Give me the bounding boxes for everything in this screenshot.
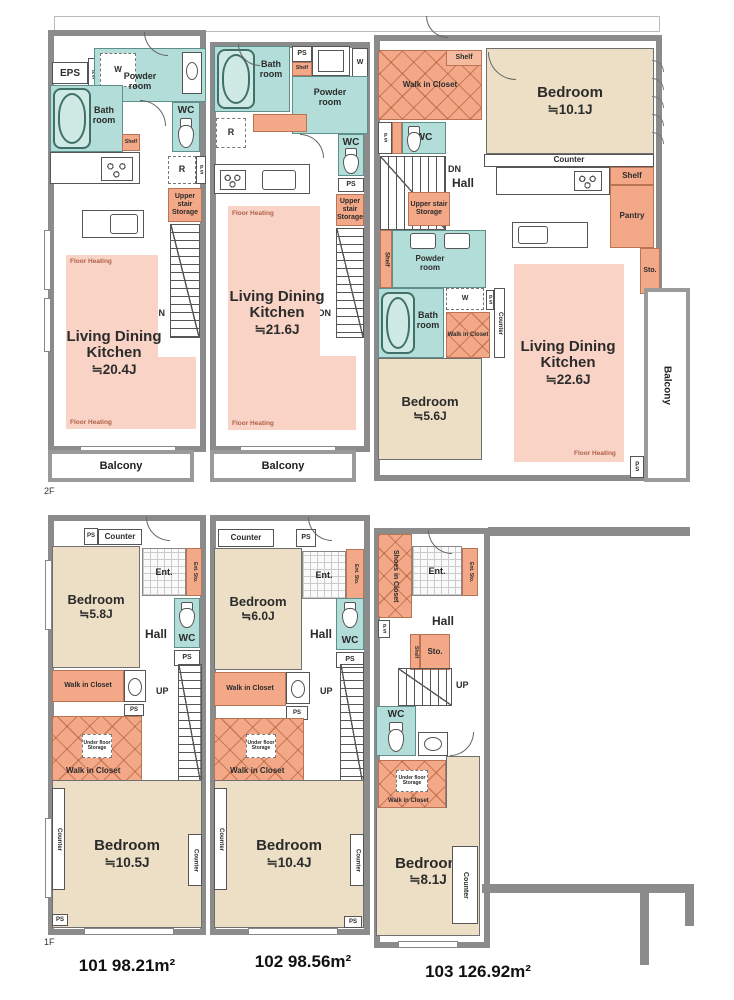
sink-icon [110,214,138,234]
hall-label: Hall [432,614,454,628]
washer-label: W [462,295,469,303]
walk-in-closet: Walk in Closet [446,312,490,358]
toilet-icon [386,722,406,752]
room-label: Powder room [118,71,162,91]
walk-in-closet-label: Walk in Closet [230,766,284,775]
washer-space: W [446,288,484,310]
room-label: Shelf [455,54,472,62]
entrance-storage: Ent. Sto. [462,548,478,596]
floor-tag-2f: 2F [44,486,55,496]
bedroom-area [446,756,480,810]
ps-label: PS [382,133,388,143]
storage: Sto. [420,634,450,670]
pipe-space: PS [344,916,362,928]
room-label: Ent. [429,566,446,576]
ps-label: PS [130,707,138,714]
pipe-space: PS [84,528,98,545]
room-label: Sto. [643,267,656,275]
boundary-wall [685,884,694,926]
casement-window [652,114,664,126]
entrance-storage: Ent. Sto. [186,548,202,596]
refrigerator-label: R [179,165,186,175]
room-label: Shoes in Closet [391,550,399,603]
shelf: Shelf [380,230,392,288]
room-label: Ent. Sto. [352,564,358,584]
casement-window [652,78,664,90]
stair-diagonal [399,669,451,705]
washbasin-icon [186,62,198,80]
shelf: Shelf [410,634,420,670]
room-size: ≒6.0J [241,610,274,623]
toilet-icon [342,148,360,174]
floor-heating-label: Floor Heating [574,450,616,457]
floor-heating-label: Floor Heating [232,210,274,217]
room-size: ≒10.1J [547,102,592,117]
pipe-space: PS [378,122,392,154]
window [84,928,174,935]
ps-label: PS [345,656,354,664]
washer-label: W [357,59,364,67]
counter: Counter [98,529,142,545]
ps-label: PS [56,917,64,924]
room-label: Upper stair Storage [409,201,449,217]
room-size: ≒10.5J [104,855,149,870]
room-label: Under floor Storage [83,741,111,752]
ps-label: PS [293,710,301,717]
room-label: Balcony [100,460,143,472]
ps-label: PS [634,462,641,472]
room-label: Counter [192,849,199,872]
room-label: Shelf [125,140,137,146]
bathtub-icon [381,292,415,354]
washbasin-icon [291,680,305,698]
counter: Counter [214,788,227,890]
room-label: Living Dining Kitchen [58,329,170,363]
room-size: ≒5.6J [413,410,446,423]
floor-heating-label: Floor Heating [70,258,112,265]
stairs-up-label: UP [156,686,169,696]
room-label: Walk in Closet [403,81,457,90]
shelf: Shelf [292,62,312,76]
counter: Counter [494,288,505,358]
balcony: Balcony [48,450,194,482]
pipe-space: PS [52,914,68,926]
walk-in-closet: Walk in Closet [214,672,286,706]
pipe-space: PS [338,178,364,192]
stairs [336,228,364,338]
under-floor-storage: Under floor Storage [82,734,112,758]
pipe-space: PS [378,620,390,638]
ps-label: PS [349,919,357,926]
casement-window [652,132,664,144]
room-label: Bedroom [537,85,603,102]
stairs-up-label: UP [320,686,333,696]
room-label: Shelf [622,172,642,181]
room-label: WC [178,105,195,116]
powder-room-label: Powder room [406,252,454,276]
room-label: Pantry [620,212,645,221]
unit-103-area: 103 126.92m² [398,962,558,982]
room-label: Counter [231,534,262,543]
room-label: Bath room [86,105,122,125]
under-floor-storage: Under floor Storage [396,770,428,792]
ldk-label: Living Dining Kitchen≒22.6J [510,332,626,394]
room-label: Walk in Closet [448,332,489,339]
toilet-icon [177,118,195,148]
floor-tag-1f: 1F [44,937,55,947]
refrigerator-space: R [216,118,246,148]
room-label: Sto. [427,648,442,657]
room-label: Counter [217,828,224,851]
room-label: Counter [554,156,585,165]
boundary-wall [640,893,649,965]
ps-label: PS [182,654,191,662]
washbasin-icon [128,678,142,696]
sink-icon [518,226,548,244]
room-label: Ent. Sto. [191,562,197,582]
entrance-storage: Ent. Sto. [346,549,364,599]
pipe-space: PS [486,290,494,310]
washbasin-icon [410,233,436,249]
bedroom: Bedroom≒6.0J [214,548,302,670]
ps-label: PS [381,624,387,634]
walk-in-closet: Walk in Closet [52,670,124,702]
washing-machine-icon [318,50,344,72]
room-size: ≒10.4J [266,855,311,870]
counter: Counter [188,834,202,886]
room-label: WC [342,635,359,646]
bedroom: Bedroom≒10.5J [52,780,202,928]
ps-label: PS [297,50,306,58]
stove-icon [574,171,602,191]
room-size: ≒21.6J [254,322,299,337]
casement-window [652,96,664,108]
entrance: Ent. [412,546,462,596]
hall-label: Hall [310,627,332,641]
boundary-wall [488,527,690,536]
room-label: Powder room [406,255,454,273]
refrigerator-space: R [168,156,196,184]
stove-icon [220,170,246,190]
counter-shelf [253,114,307,132]
bath-room-label: Bath room [412,306,444,334]
powder-room-label: Powder room [306,84,354,110]
walk-in-closet-label: Walk in Closet [388,798,429,804]
floor-heating-label: Floor Heating [232,420,274,427]
counter: Counter [452,846,478,924]
ps-label: PS [87,533,95,540]
room-label: Under floor Storage [247,741,275,752]
room-label: Bedroom [401,395,458,410]
stairs [170,224,200,338]
room-label: Ent. [156,567,173,577]
window [45,560,52,630]
washbasin-icon [444,233,470,249]
stairs [178,664,202,786]
hall-label: Hall [145,627,167,641]
floor-heating-area [228,356,356,430]
ldk-label: Living Dining Kitchen≒21.6J [222,282,332,344]
washbasin-icon [424,737,442,751]
ps-label: PS [301,534,310,542]
balcony: Balcony [644,288,690,482]
shelf: Shelf [122,134,140,151]
bath-room-label: Bath room [86,102,122,128]
room-size: ≒20.4J [91,362,136,377]
toilet-icon [406,126,422,152]
toilet-icon [341,602,359,628]
room-label: WC [179,633,196,644]
room-label: Powder room [306,87,354,107]
boundary-wall [482,884,694,893]
unit-101-area: 101 98.21m² [52,956,202,976]
room-label: Counter [105,533,136,542]
stair-diagonal [341,665,363,785]
casement-window [652,60,664,72]
upper-stair-storage: Upper stair Storage [168,188,202,222]
ps-label: PS [487,295,493,305]
room-label: Walk in Closet [64,682,112,690]
pipe-space: PS [292,46,312,62]
walk-in-closet-label: Walk in Closet [66,766,120,775]
pantry: Pantry [610,185,654,248]
upper-stair-storage: Upper stair Storage [336,194,364,226]
balcony: Balcony [210,450,356,482]
counter: Counter [218,529,274,547]
room-label: Bedroom [67,593,124,608]
ps-label: PS [198,165,204,175]
room-label: Under floor Storage [397,776,427,787]
room-label: Bedroom [94,838,160,855]
room-label: Living Dining Kitchen [222,289,332,323]
bedroom: Bedroom≒5.6J [378,358,482,460]
room-label: Walk in Closet [226,685,274,693]
shelf: Shelf [610,167,654,185]
shelf: Shelf [446,50,482,66]
room-label: Shelf [383,252,390,267]
window [45,818,52,898]
room-label: Bedroom [229,595,286,610]
toilet-icon [178,602,196,628]
pipe-space: PS [630,456,644,478]
eps-shaft: EPS [52,62,88,84]
room-label: Counter [55,828,62,851]
room-label: WC [388,709,405,720]
counter: Counter [484,154,654,167]
room-label: Balcony [262,460,305,472]
entrance: Ent. [142,548,186,596]
window [44,230,51,290]
room-label: Counter [354,849,361,872]
bedroom: Bedroom≒10.4J [214,780,364,928]
stair-diagonal [171,225,199,337]
room-size: ≒22.6J [545,372,590,387]
room-label: Bedroom [256,838,322,855]
room-size: ≒8.1J [409,872,447,887]
bedroom: Bedroom≒5.8J [52,546,140,668]
stairs-dn-label: DN [448,164,461,174]
room-label: Living Dining Kitchen [510,339,626,373]
stair-diagonal [179,665,201,785]
room-label: Ent. [316,570,333,580]
ldk-label: Living Dining Kitchen≒20.4J [58,322,170,384]
counter: Counter [350,834,364,886]
room-label: Upper stair Storage [169,193,201,216]
stairs-up-label: UP [456,680,469,690]
stairs [398,668,452,706]
washer-space: W [352,48,368,78]
stairs [340,664,364,786]
room-label: WC [343,137,360,148]
unit-102-area: 102 98.56m² [228,952,378,972]
sink-icon [262,170,296,190]
room-label: Upper stair Storage [337,198,363,221]
window [248,928,338,935]
room-label: Balcony [662,366,673,405]
floor-plan: EPS PS W Powder room WC Bath room Shelf … [0,0,734,1000]
room-label: Counter [496,312,503,335]
room-label: Bath room [412,310,444,330]
pipe-space: PS [196,156,206,184]
room-label: Shelf [296,66,308,72]
refrigerator-label: R [228,128,235,138]
counter: Counter [52,788,65,890]
floor-heating-label: Floor Heating [70,419,112,426]
stove-icon [101,157,133,181]
hall-label: Hall [452,176,474,190]
upper-stair-storage: Upper stair Storage [408,192,450,226]
ps-label: PS [346,181,355,189]
under-floor-storage: Under floor Storage [246,734,276,758]
shoes-in-closet: Shoes in Closet [378,534,412,618]
eps-label: EPS [60,68,80,79]
window [44,298,51,352]
room-label: Counter [461,872,469,899]
room-label: Shelf [412,646,418,658]
powder-room-label: Powder room [118,68,162,94]
stair-diagonal [337,229,363,337]
entrance: Ent. [302,551,346,599]
room-size: ≒5.8J [79,608,112,621]
pipe-space: PS [124,704,144,716]
shelf [392,122,402,154]
window [398,941,458,948]
room-label: Ent. Sto. [467,562,473,582]
